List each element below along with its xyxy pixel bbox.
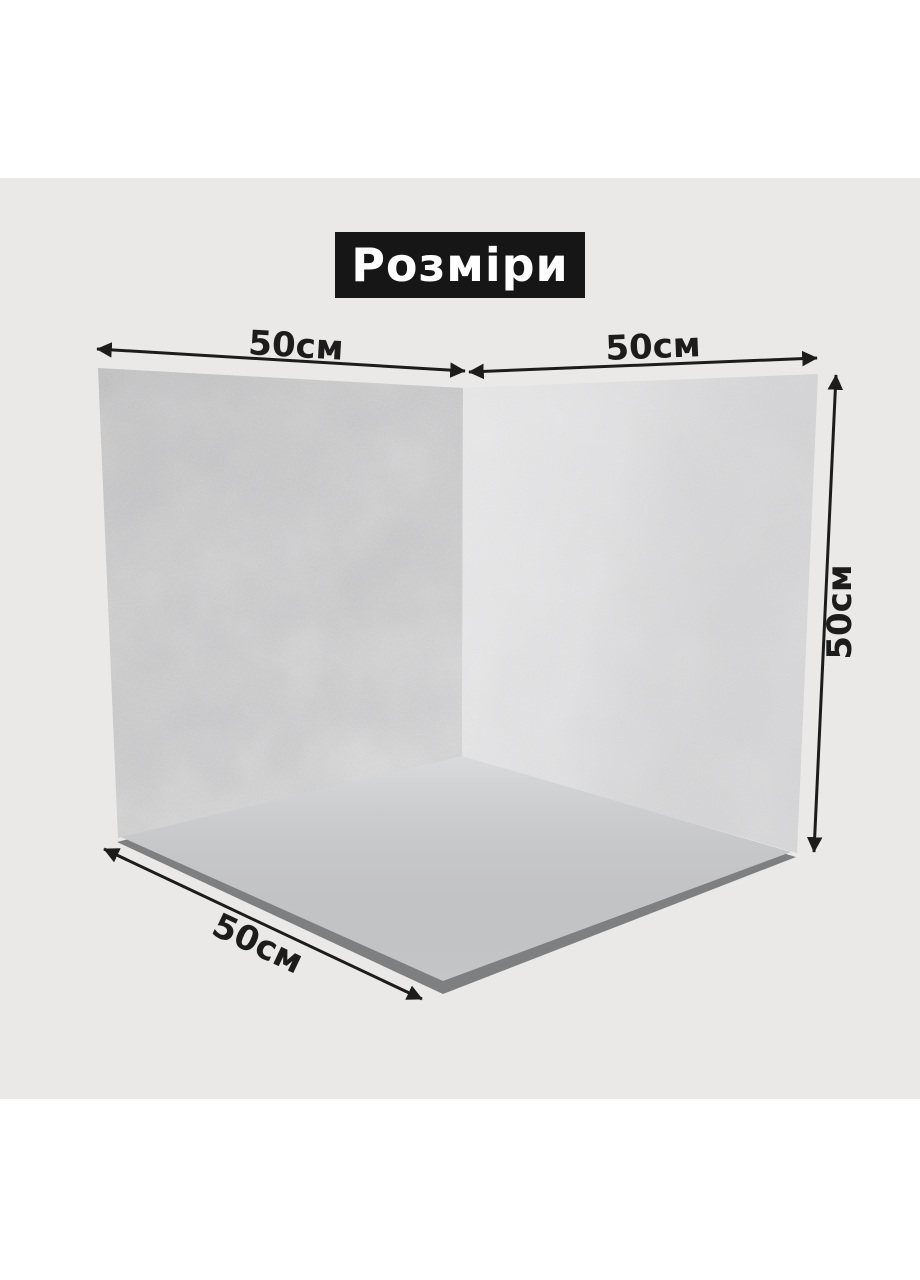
title-badge: Розміри (335, 232, 585, 298)
dimension-label: 50см (820, 564, 860, 659)
dimension-label: 50см (605, 325, 702, 369)
dimension-label: 50см (247, 323, 344, 369)
page-title: Розміри (351, 238, 569, 292)
left-wall-shading (98, 368, 463, 838)
scene-svg: 50см 50см 50см 50см Розміри (0, 0, 920, 1280)
product-dimensions-infographic: 50см 50см 50см 50см Розміри (0, 0, 920, 1280)
